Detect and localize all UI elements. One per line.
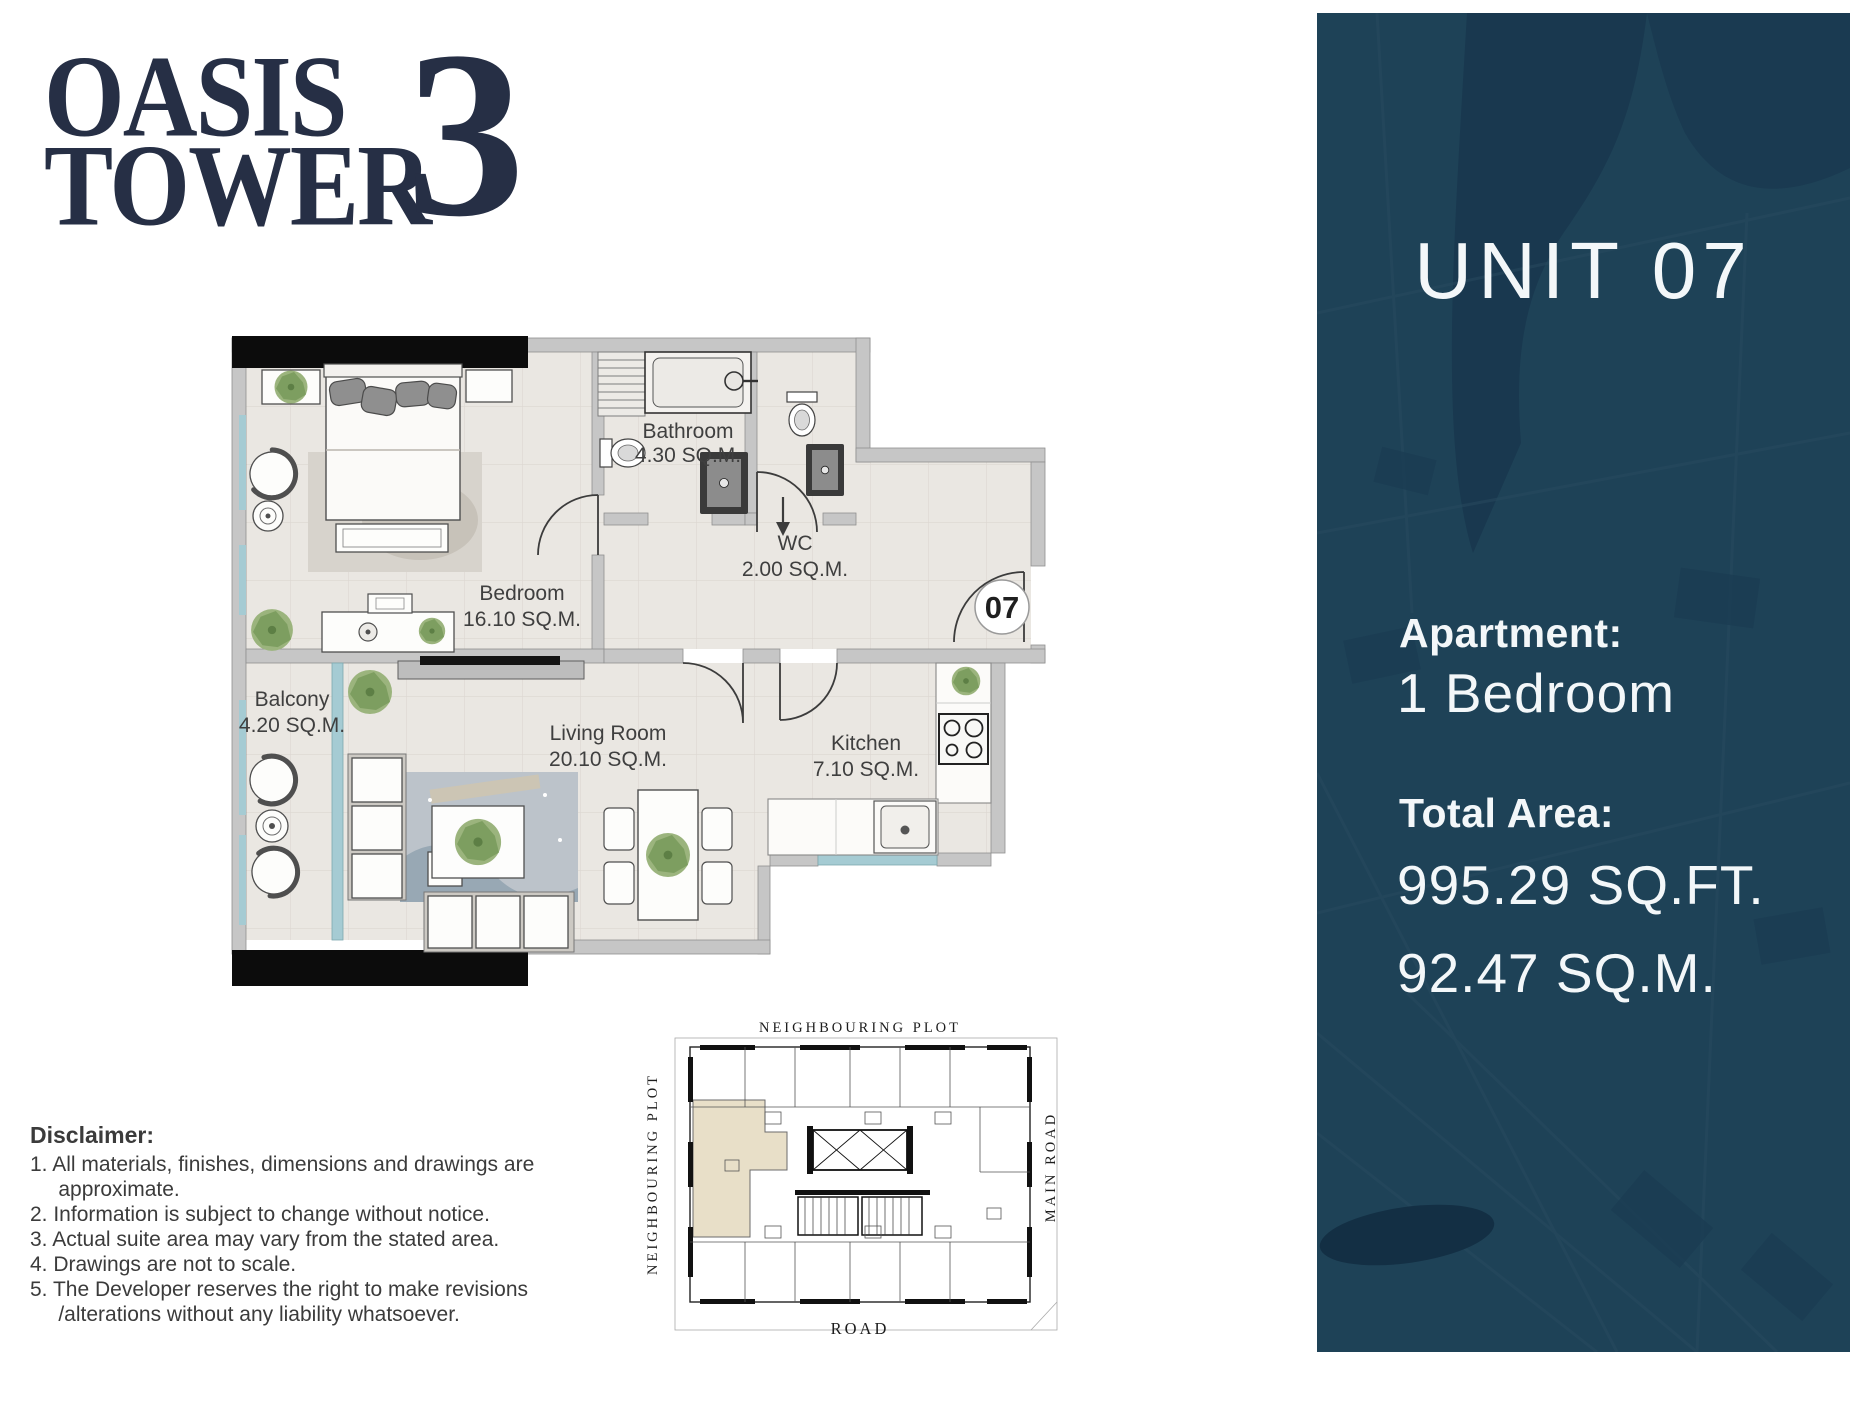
label-kitchen: Kitchen — [831, 732, 901, 755]
label-kitchen-area: 7.10 SQ.M. — [813, 758, 919, 781]
toilet-icon — [787, 392, 817, 436]
label-wc-area: 2.00 SQ.M. — [742, 558, 848, 581]
key-plan-left-label: NEIGHBOURING PLOT — [645, 1073, 661, 1275]
disclaimer-item: 3. Actual suite area may vary from the s… — [30, 1227, 545, 1252]
unit-info-panel: UNIT 07 Apartment: 1 Bedroom Total Area:… — [1317, 13, 1850, 1352]
logo-number-3: 3 — [406, 16, 525, 254]
shower-head-icon — [725, 372, 743, 390]
label-living-room-area: 20.10 SQ.M. — [549, 748, 667, 771]
apartment-label: Apartment: — [1399, 610, 1623, 657]
disclaimer-item: 5. The Developer reserves the right to m… — [30, 1277, 545, 1327]
sink-icon — [874, 801, 936, 853]
apartment-value: 1 Bedroom — [1397, 661, 1675, 725]
disclaimer-item: 1. All materials, finishes, dimensions a… — [30, 1152, 545, 1202]
unit-title: UNIT 07 — [1317, 225, 1850, 317]
label-bedroom: Bedroom — [479, 582, 564, 605]
key-plan: NEIGHBOURING PLOT NEIGHBOURING PLOT MAIN… — [635, 1012, 1085, 1362]
bench — [336, 524, 448, 552]
label-balcony: Balcony — [255, 688, 330, 711]
slab-edge-bottom — [232, 950, 528, 986]
label-living-room: Living Room — [550, 722, 667, 745]
disclaimer: Disclaimer: 1. All materials, finishes, … — [30, 1122, 545, 1327]
brochure-page: OASIS TOWER 3 — [0, 0, 1850, 1408]
logo: OASIS TOWER 3 — [44, 50, 524, 227]
label-bedroom-area: 16.10 SQ.M. — [463, 608, 581, 631]
total-area-label: Total Area: — [1399, 790, 1614, 837]
tv-icon — [420, 656, 560, 665]
slab-edge-top — [232, 336, 528, 368]
area-sqm-value: 92.47 SQ.M. — [1397, 941, 1717, 1005]
disclaimer-heading: Disclaimer: — [30, 1122, 545, 1149]
disclaimer-item: 4. Drawings are not to scale. — [30, 1252, 545, 1277]
wc-door-panel — [806, 444, 844, 496]
stove-icon — [939, 714, 988, 764]
key-plan-right-label: MAIN ROAD — [1043, 1112, 1059, 1222]
label-balcony-area: 4.20 SQ.M. — [239, 714, 345, 737]
disclaimer-item: 2. Information is subject to change with… — [30, 1202, 545, 1227]
unit-marker: 07 — [975, 580, 1029, 634]
unit-marker-number: 07 — [985, 590, 1019, 625]
key-plan-top-label: NEIGHBOURING PLOT — [759, 1020, 961, 1036]
label-bathroom: Bathroom — [642, 420, 733, 443]
label-bathroom-area: 4.30 SQ.M. — [635, 444, 741, 467]
key-plan-bottom-label: ROAD — [831, 1319, 890, 1338]
area-sqft-value: 995.29 SQ.FT. — [1397, 853, 1765, 917]
floor-plan: Bedroom 16.10 SQ.M. Bathroom 4.30 SQ.M. … — [190, 280, 1070, 1000]
